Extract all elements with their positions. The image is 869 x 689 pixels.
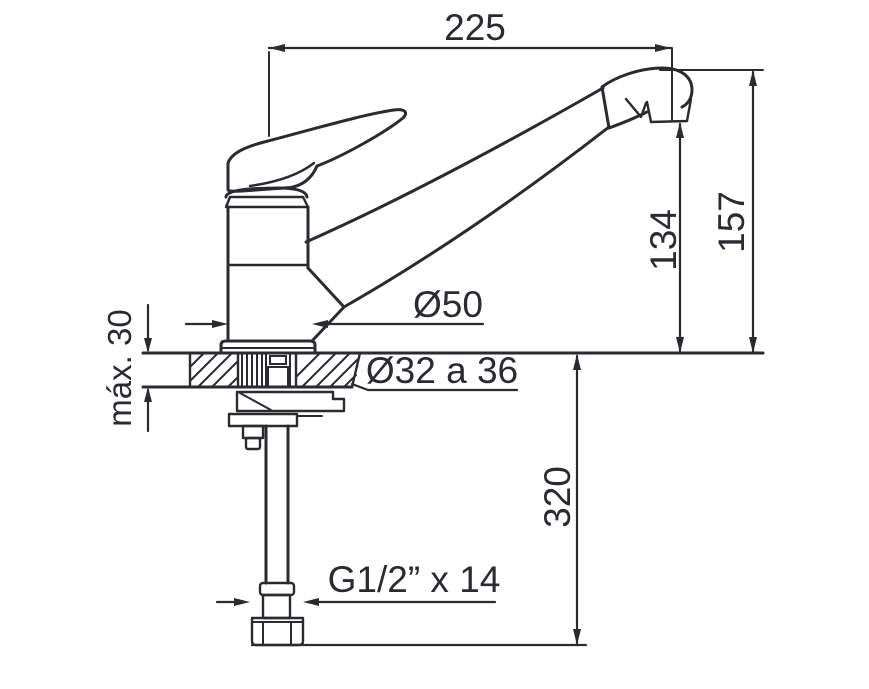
arrow-down-icon [676, 337, 684, 353]
hole-diameter-label: Ø32 a 36 [366, 350, 518, 391]
dimension-counter-thickness: máx. 30 [101, 305, 152, 431]
arrow-down-icon [144, 338, 152, 353]
base-plate [221, 341, 315, 353]
dimension-body-diameter: Ø50 [186, 284, 483, 328]
arrow-left-icon [303, 598, 319, 606]
supply-length-label: 320 [537, 466, 578, 528]
spout-head [602, 68, 692, 128]
body-diameter-label: Ø50 [413, 284, 483, 325]
arrow-up-icon [144, 387, 152, 402]
threaded-shank [242, 353, 290, 387]
spout-reach-label: 225 [444, 7, 506, 48]
hatch-right [296, 353, 358, 387]
dimension-thread-spec: G1/2” x 14 [217, 559, 500, 606]
arrow-left-icon [312, 320, 328, 328]
dimension-hole-diameter: Ø32 a 36 [352, 350, 518, 391]
arrow-right-icon [234, 598, 250, 606]
arrow-up-icon [749, 70, 757, 86]
clamp-bracket [237, 392, 344, 411]
outlet-height-label: 134 [643, 209, 684, 271]
dimension-spout-reach: 225 [269, 7, 672, 136]
supply-hose [252, 426, 303, 645]
washer-plate [229, 414, 297, 426]
arrow-down-icon [573, 629, 581, 645]
arrow-left-icon [269, 44, 285, 52]
arrow-up-icon [676, 122, 684, 138]
hose-ferrule [260, 583, 294, 595]
lever-handle [228, 110, 406, 192]
spout-tube [306, 88, 609, 307]
spout-height-label: 157 [711, 191, 752, 253]
thread-spec-label: G1/2” x 14 [328, 559, 501, 600]
stud-nut [246, 438, 260, 449]
hatch-left [190, 353, 238, 387]
arrow-right-icon [212, 320, 228, 328]
arrow-right-icon [655, 44, 671, 52]
hose-thread [263, 595, 290, 618]
counter-thickness-label: máx. 30 [101, 309, 138, 426]
technical-drawing: 225 157 134 Ø50 Ø32 a 36 máx. 30 [0, 0, 869, 689]
dimension-outlet-height: 134 [643, 122, 684, 353]
faucet-diagram-svg: 225 157 134 Ø50 Ø32 a 36 máx. 30 [0, 0, 869, 689]
arrow-up-icon [573, 354, 581, 370]
arrow-down-icon [749, 337, 757, 353]
cartridge-dome [226, 188, 308, 207]
